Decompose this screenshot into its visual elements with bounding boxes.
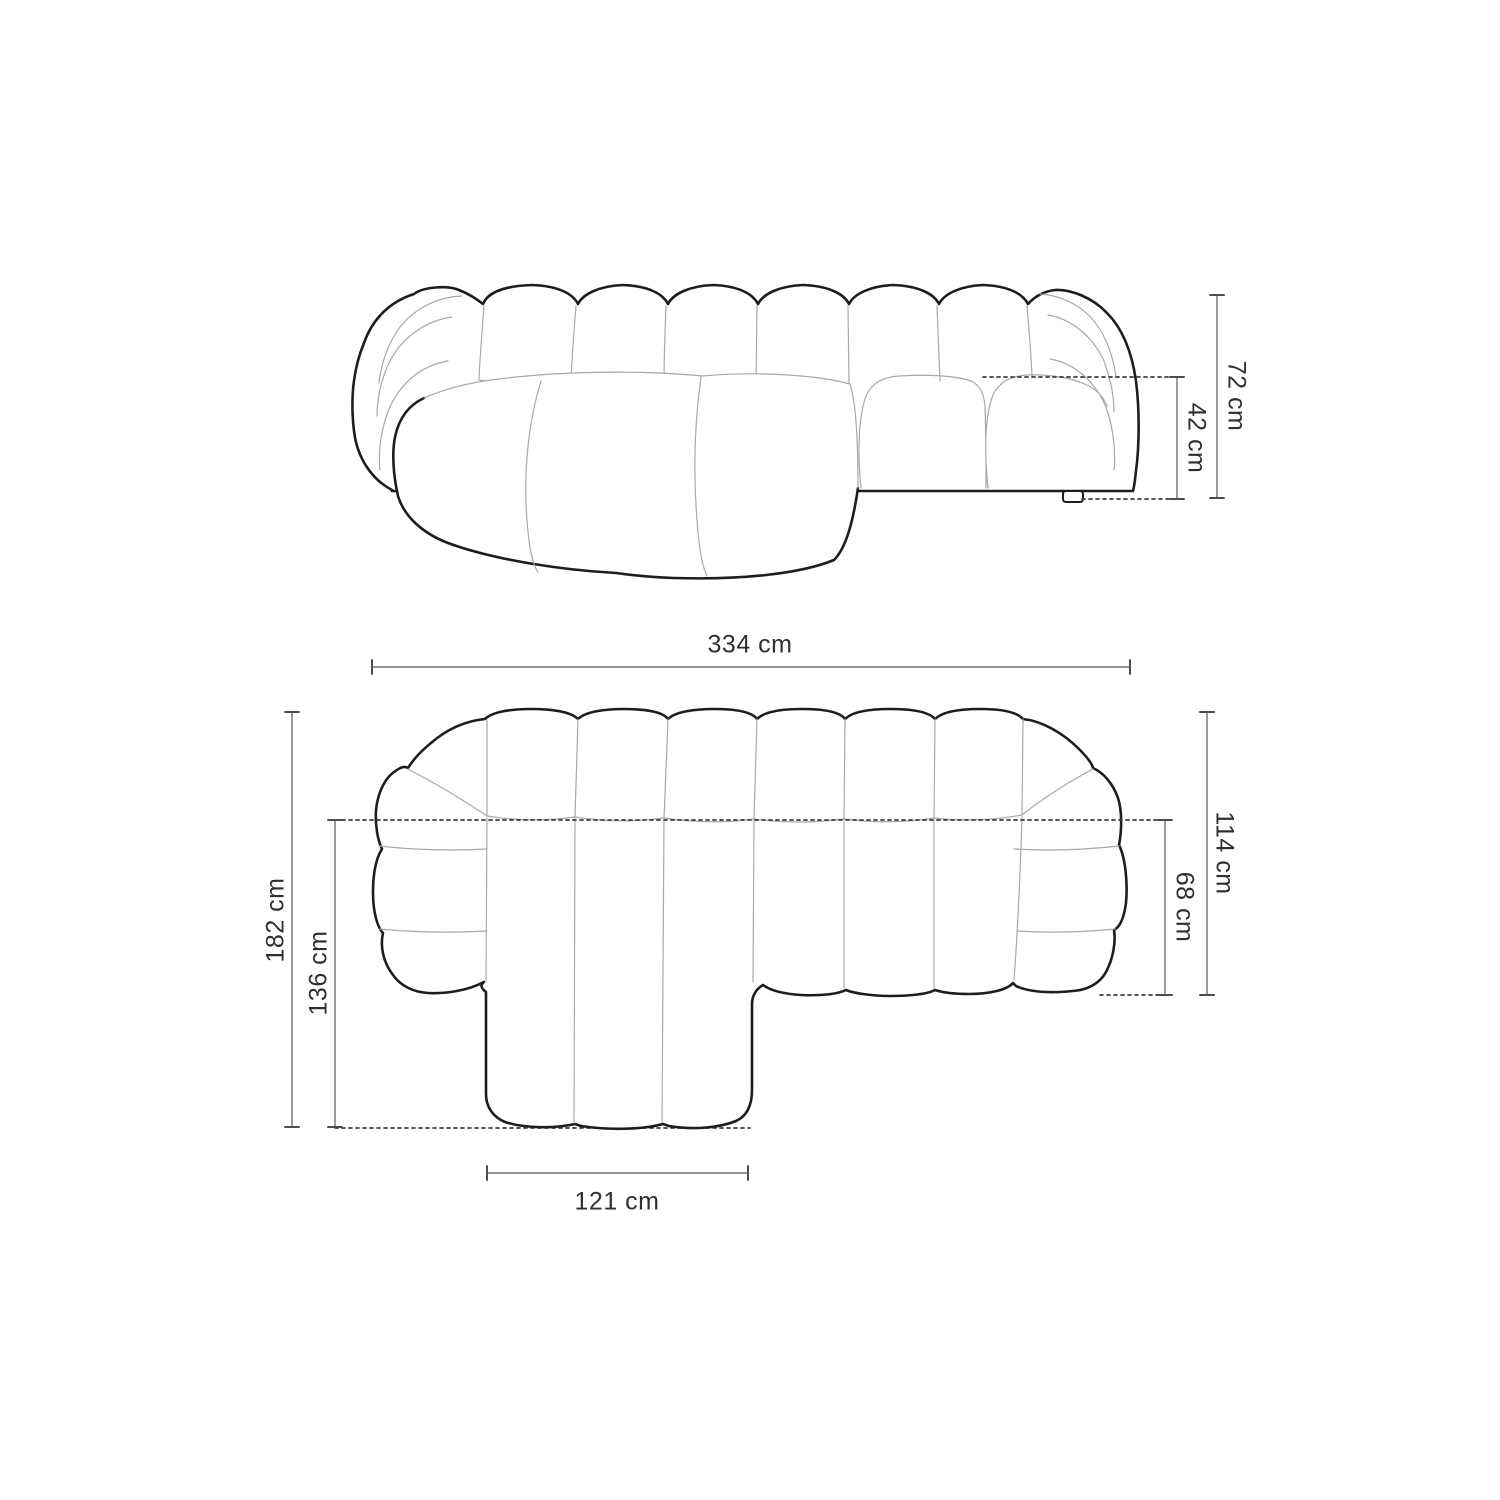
total-depth-label: 182 cm — [264, 878, 289, 963]
seat-depth-label: 68 cm — [1172, 872, 1197, 943]
chaise-width-label: 121 cm — [575, 1190, 660, 1215]
diagram-drawing — [0, 0, 1500, 1500]
top-plan-view — [335, 709, 1127, 1129]
chaise-depth-label: 136 cm — [307, 931, 332, 1016]
front-sofa-foot — [1063, 491, 1083, 502]
front-elevation-view — [352, 285, 1138, 578]
total-width-label: 334 cm — [708, 633, 793, 658]
seat-height-label: 42 cm — [1184, 403, 1209, 474]
sofa-dimensions-diagram: 72 cm 42 cm 334 cm 182 cm 136 cm 114 cm … — [0, 0, 1500, 1500]
main-depth-label: 114 cm — [1212, 811, 1237, 894]
total-height-label: 72 cm — [1224, 361, 1249, 432]
